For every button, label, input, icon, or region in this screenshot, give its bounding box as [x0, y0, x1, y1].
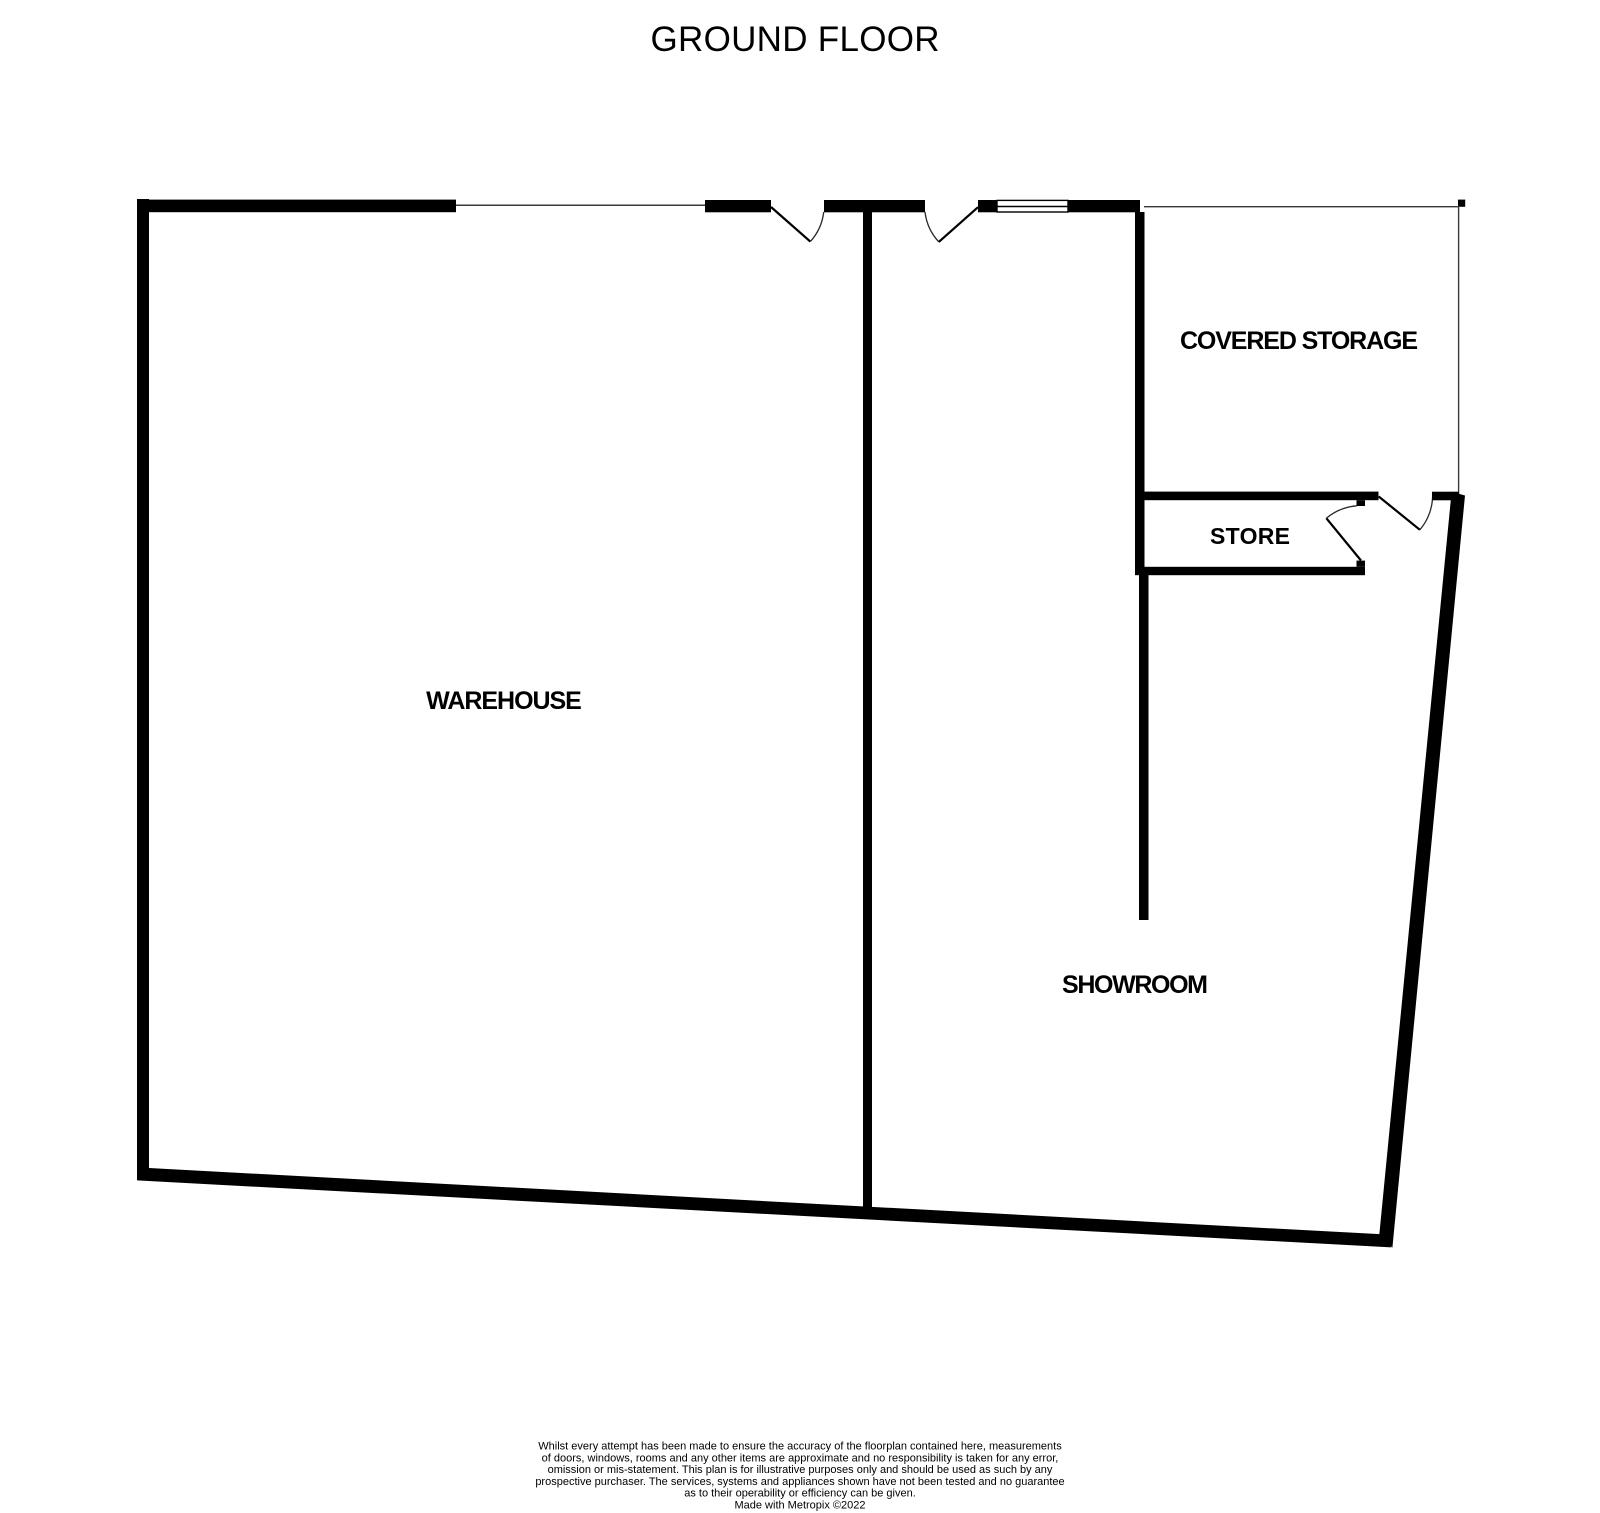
svg-text:prospective purchaser. The ser: prospective purchaser. The services, sys…	[535, 1476, 1064, 1488]
svg-text:omission or mis-statement. Thi: omission or mis-statement. This plan is …	[548, 1464, 1053, 1476]
svg-text:Whilst every attempt has been: Whilst every attempt has been made to en…	[538, 1441, 1062, 1453]
svg-text:WAREHOUSE: WAREHOUSE	[426, 687, 582, 715]
svg-text:of doors, windows, rooms and a: of doors, windows, rooms and any other i…	[542, 1452, 1059, 1464]
svg-text:SHOWROOM: SHOWROOM	[1062, 971, 1208, 999]
svg-text:STORE: STORE	[1210, 523, 1290, 549]
svg-text:as to their operability or eff: as to their operability or efficiency ca…	[684, 1488, 916, 1500]
svg-text:GROUND FLOOR: GROUND FLOOR	[651, 20, 940, 59]
svg-text:COVERED STORAGE: COVERED STORAGE	[1180, 327, 1418, 355]
svg-text:Made with Metropix ©2022: Made with Metropix ©2022	[734, 1500, 865, 1512]
